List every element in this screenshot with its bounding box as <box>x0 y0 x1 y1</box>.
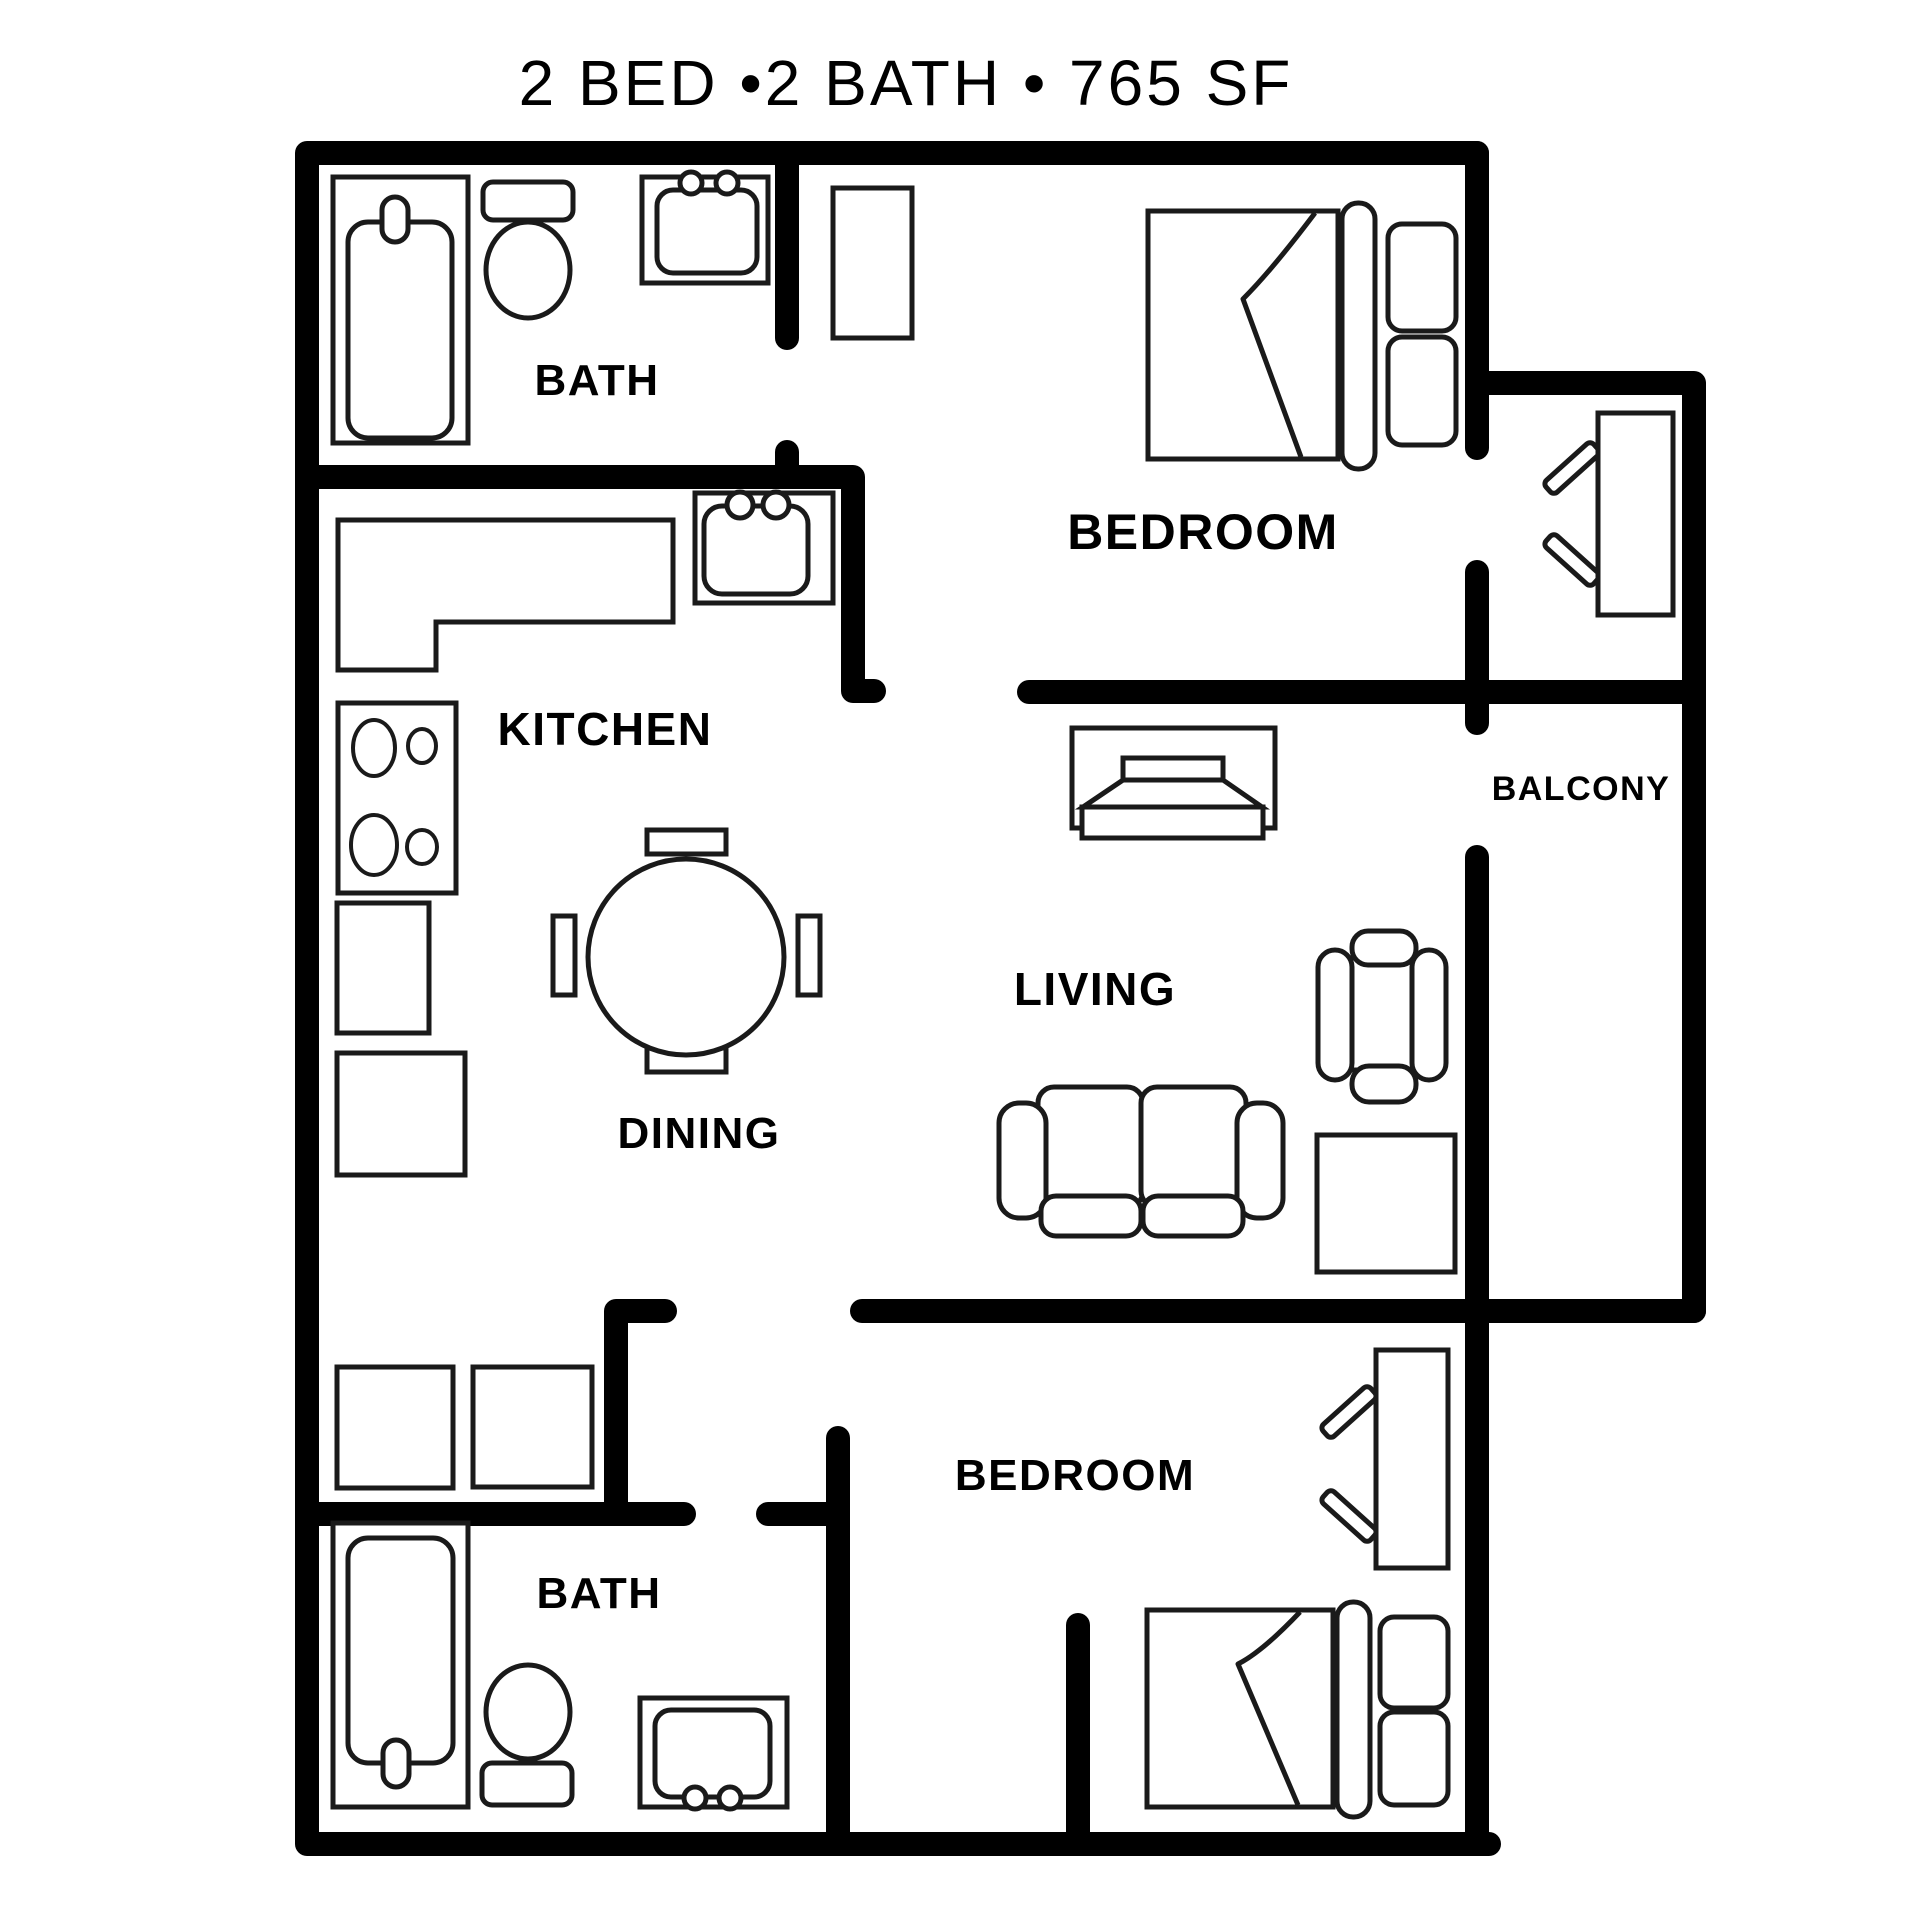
sink-faucet-knob <box>680 172 702 194</box>
dining-chair-icon <box>798 916 820 995</box>
armchair-arm <box>1412 950 1446 1080</box>
bed-headboard <box>1342 203 1375 469</box>
sink-faucet-knob <box>727 492 753 518</box>
toilet-bowl <box>486 222 570 318</box>
kitchen-sink-basin <box>704 506 808 594</box>
burner <box>351 815 397 875</box>
dining-chair-icon <box>553 916 575 995</box>
queen-bed-icon <box>1147 1610 1333 1807</box>
burner <box>408 729 436 763</box>
label-bath-top: BATH <box>535 356 660 405</box>
label-bedroom-top: BEDROOM <box>1067 504 1339 560</box>
tv-icon <box>1123 758 1223 780</box>
sink-faucet-knob <box>684 1787 706 1809</box>
queen-bed-icon <box>1148 211 1338 459</box>
kitchen-fixtures <box>337 492 833 1175</box>
armchair-cushion <box>1352 1066 1416 1102</box>
pillow-icon <box>1380 1712 1448 1805</box>
bedroom-bottom-furniture <box>1147 1350 1448 1817</box>
burner <box>407 830 437 864</box>
floor-plan-page: 2 BED •2 BATH • 765 SF BATH BEDROOM KITC… <box>0 0 1920 1920</box>
balcony-chair-icon <box>1598 413 1673 615</box>
label-bath-bottom: BATH <box>537 1569 662 1618</box>
burner <box>353 720 395 776</box>
cabinet-icon <box>337 1053 465 1175</box>
balcony-furniture <box>1543 413 1673 615</box>
sofa-seat <box>1141 1087 1246 1207</box>
plan-title: 2 BED •2 BATH • 765 SF <box>519 47 1294 119</box>
bed-headboard <box>1337 1602 1370 1817</box>
label-dining: DINING <box>618 1109 781 1158</box>
dining-table-icon <box>588 859 784 1055</box>
sofa-seat <box>1038 1087 1143 1207</box>
storage-cabinet-icon <box>337 1367 453 1488</box>
label-living: LIVING <box>1014 963 1176 1015</box>
bathtub-faucet <box>383 1740 409 1787</box>
bathtub-faucet <box>382 197 408 242</box>
loveseat-sofa-icon <box>999 1103 1046 1218</box>
sofa-back-cushion <box>1143 1196 1243 1236</box>
armchair-arm <box>1318 950 1352 1080</box>
storage-cabinet-icon <box>473 1367 592 1487</box>
side-table-icon <box>1317 1135 1455 1272</box>
armchair-back <box>1352 931 1416 965</box>
toilet-tank <box>483 182 573 220</box>
bathtub-basin <box>348 222 452 438</box>
bedroom-top-furniture <box>1148 203 1456 469</box>
walls <box>307 153 1694 1844</box>
dining-chair-icon <box>647 830 726 854</box>
bedroom-chair-leg <box>1320 1489 1378 1544</box>
sink-faucet-knob <box>763 492 789 518</box>
bedroom-chair-leg <box>1320 1385 1378 1440</box>
toilet-bowl <box>486 1665 570 1759</box>
tv-base <box>1082 807 1263 838</box>
bedroom-chair-icon <box>1376 1350 1448 1568</box>
sink-basin <box>657 190 757 273</box>
toilet-tank <box>482 1763 572 1805</box>
sink-faucet-knob <box>719 1787 741 1809</box>
pillow-icon <box>1388 337 1456 445</box>
sofa-back-cushion <box>1041 1196 1141 1236</box>
balcony-chair-leg <box>1543 441 1601 496</box>
dining-furniture <box>553 830 820 1072</box>
label-kitchen: KITCHEN <box>498 703 713 755</box>
balcony-chair-leg <box>1543 533 1601 588</box>
wardrobe-icon <box>833 188 912 338</box>
sink-basin <box>655 1710 770 1797</box>
sink-faucet-knob <box>716 172 738 194</box>
floor-plan-svg: 2 BED •2 BATH • 765 SF BATH BEDROOM KITC… <box>0 0 1920 1920</box>
pillow-icon <box>1380 1617 1448 1708</box>
kitchen-counter-icon <box>338 520 673 670</box>
wall-dining-stub <box>616 1311 665 1508</box>
refrigerator-icon <box>337 903 429 1033</box>
bathtub-basin <box>348 1538 453 1763</box>
pillow-icon <box>1388 224 1456 331</box>
sofa-armrest <box>1237 1103 1283 1218</box>
label-balcony: BALCONY <box>1492 770 1671 808</box>
label-bedroom-bottom: BEDROOM <box>955 1451 1195 1500</box>
